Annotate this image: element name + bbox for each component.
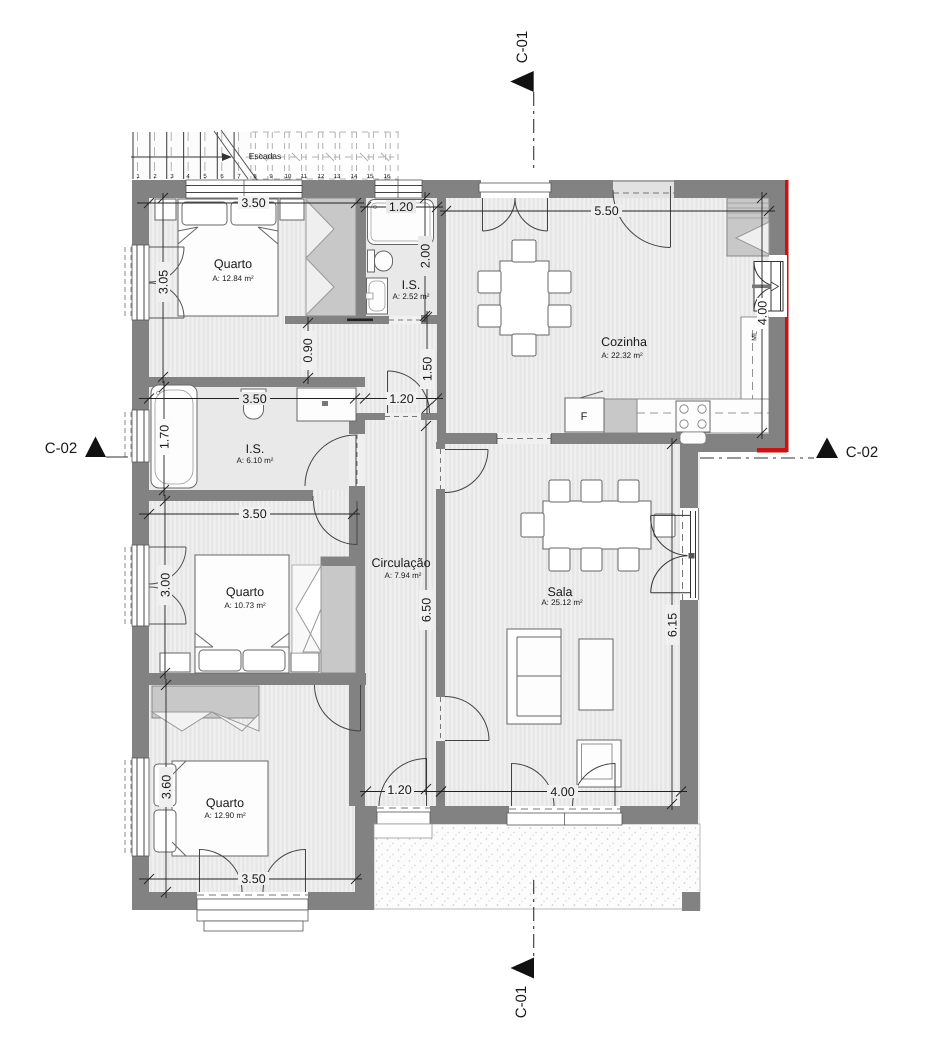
svg-text:Sala: Sala [547,585,572,599]
svg-text:1.20: 1.20 [389,200,413,214]
svg-text:C-02: C-02 [45,440,78,457]
svg-text:Quarto: Quarto [214,257,252,271]
svg-text:A: 6.10 m²: A: 6.10 m² [237,456,274,465]
svg-text:13: 13 [334,173,341,180]
svg-text:12: 12 [318,173,325,180]
svg-text:3.50: 3.50 [241,196,265,210]
svg-text:A: 25.12 m²: A: 25.12 m² [541,598,583,607]
svg-text:C-01: C-01 [513,986,530,1019]
svg-text:C-02: C-02 [846,444,879,461]
svg-text:0.90: 0.90 [301,338,315,362]
svg-text:1.20: 1.20 [389,392,413,406]
svg-text:6.50: 6.50 [420,598,434,622]
svg-text:5.50: 5.50 [594,204,618,218]
svg-text:1.20: 1.20 [387,783,411,797]
svg-text:Quarto: Quarto [206,796,244,810]
svg-text:14: 14 [351,173,358,180]
svg-text:4.00: 4.00 [550,785,574,799]
svg-text:3.00: 3.00 [159,573,173,597]
svg-text:A: 12.84 m²: A: 12.84 m² [212,274,254,283]
svg-text:I.S.: I.S. [402,278,421,292]
svg-text:A: 22.32 m²: A: 22.32 m² [601,351,643,360]
svg-text:15: 15 [367,173,374,180]
svg-text:A: 2.52 m²: A: 2.52 m² [393,292,430,301]
svg-text:10: 10 [285,173,292,180]
svg-text:ML: ML [752,331,759,341]
svg-text:A: 7.94 m²: A: 7.94 m² [385,571,422,580]
svg-text:2.00: 2.00 [419,244,433,268]
svg-text:3.50: 3.50 [242,507,266,521]
svg-text:6.15: 6.15 [666,613,680,637]
svg-text:1.50: 1.50 [421,357,435,381]
svg-text:3.50: 3.50 [242,392,266,406]
svg-text:C-01: C-01 [514,31,531,64]
svg-text:4.00: 4.00 [756,301,770,325]
svg-text:11: 11 [301,173,308,180]
svg-text:Escadas: Escadas [249,151,282,161]
svg-text:3.60: 3.60 [160,775,174,799]
svg-text:3.05: 3.05 [157,270,171,294]
svg-text:Quarto: Quarto [226,585,264,599]
svg-text:A: 10.73 m²: A: 10.73 m² [224,601,266,610]
svg-text:16: 16 [384,173,391,180]
svg-text:1.70: 1.70 [158,425,172,449]
svg-text:I.S.: I.S. [246,442,265,456]
svg-text:F: F [581,411,588,423]
svg-text:A: 12.90 m²: A: 12.90 m² [204,811,246,820]
svg-text:Cozinha: Cozinha [601,335,647,349]
svg-text:3.50: 3.50 [241,872,265,886]
svg-text:Circulação: Circulação [371,556,430,570]
